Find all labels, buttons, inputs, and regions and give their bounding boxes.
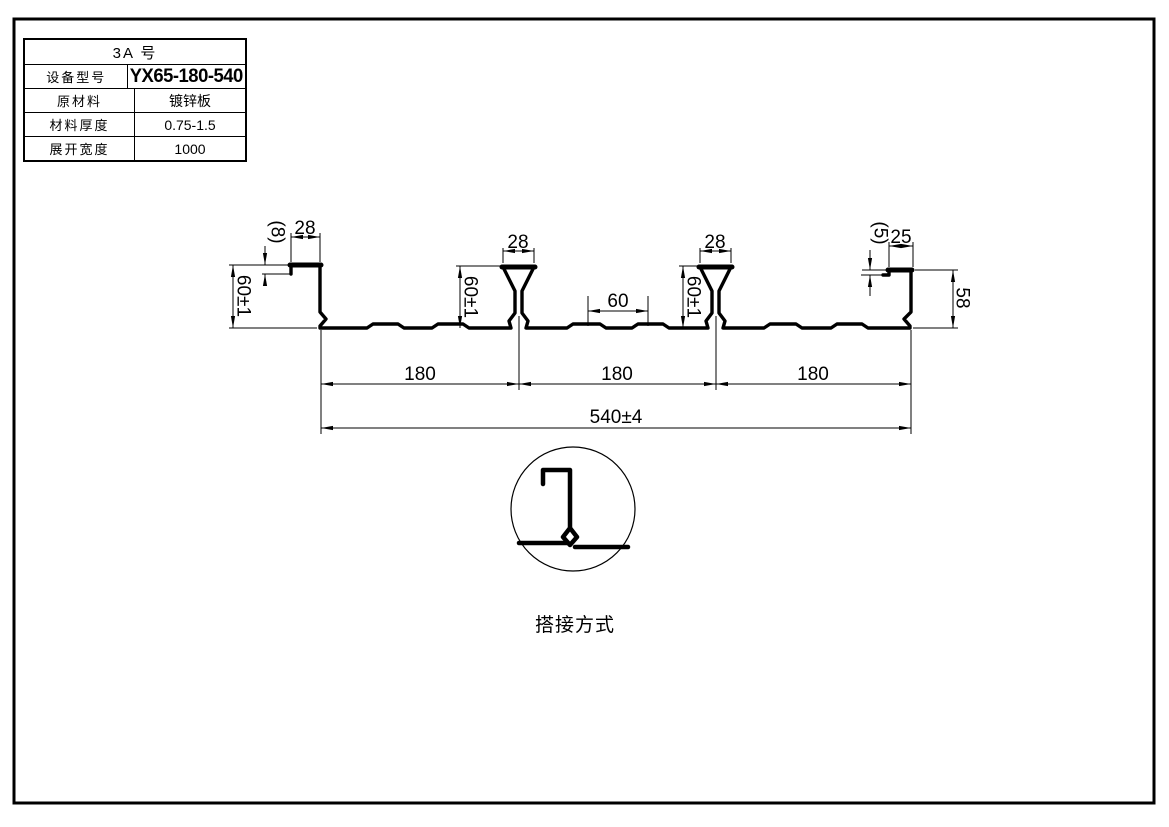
dim-text-rib1-height: 60±1 — [460, 276, 481, 318]
thickness-label: 材料厚度 — [25, 113, 135, 136]
spec-row-model: 设备型号 YX65-180-540 — [25, 65, 245, 89]
spec-row-material: 原材料 镀锌板 — [25, 89, 245, 113]
dim-text-right-flange: 25 — [890, 227, 911, 248]
material-label: 原材料 — [25, 89, 135, 112]
model-value: YX65-180-540 — [130, 66, 243, 88]
profile-section-path — [291, 265, 911, 328]
dim-text-left-height: 60±1 — [233, 275, 254, 317]
detail-hook-profile — [543, 470, 577, 545]
thickness-value: 0.75-1.5 — [135, 113, 245, 136]
profile-outline — [290, 265, 912, 328]
dim-text-left-flange: 28 — [294, 218, 315, 239]
dimension-lines — [229, 233, 958, 434]
dim-text-right-height: 58 — [952, 287, 973, 308]
coil-width-value: 1000 — [135, 137, 245, 160]
dim-text-rib2-width: 28 — [704, 232, 725, 253]
dim-text-left-lip: (8) — [267, 220, 288, 243]
dim-text-right-lip: (5) — [870, 221, 891, 244]
machine-number: 3A 号 — [25, 40, 245, 64]
lap-joint-detail — [511, 447, 635, 571]
spec-table: 3A 号 设备型号 YX65-180-540 原材料 镀锌板 材料厚度 0.75… — [23, 38, 247, 162]
model-label: 设备型号 — [25, 65, 128, 88]
detail-circle — [511, 447, 635, 571]
dim-text-overall: 540±4 — [590, 407, 643, 428]
spec-row-coil-width: 展开宽度 1000 — [25, 137, 245, 160]
detail-caption: 搭接方式 — [514, 610, 636, 637]
dim-text-span3: 180 — [797, 364, 829, 385]
spec-row-title: 3A 号 — [25, 40, 245, 65]
drawing-sheet: 28 28 28 25 60 180 180 180 540±4 60±1 60… — [0, 0, 1169, 827]
dim-text-mid-spacing: 60 — [607, 291, 628, 312]
material-value: 镀锌板 — [135, 89, 245, 112]
dim-text-span2: 180 — [601, 364, 633, 385]
coil-width-label: 展开宽度 — [25, 137, 135, 160]
dim-text-span1: 180 — [404, 364, 436, 385]
dim-text-rib1-width: 28 — [507, 232, 528, 253]
spec-row-thickness: 材料厚度 0.75-1.5 — [25, 113, 245, 137]
dim-text-rib2-height: 60±1 — [683, 276, 704, 318]
